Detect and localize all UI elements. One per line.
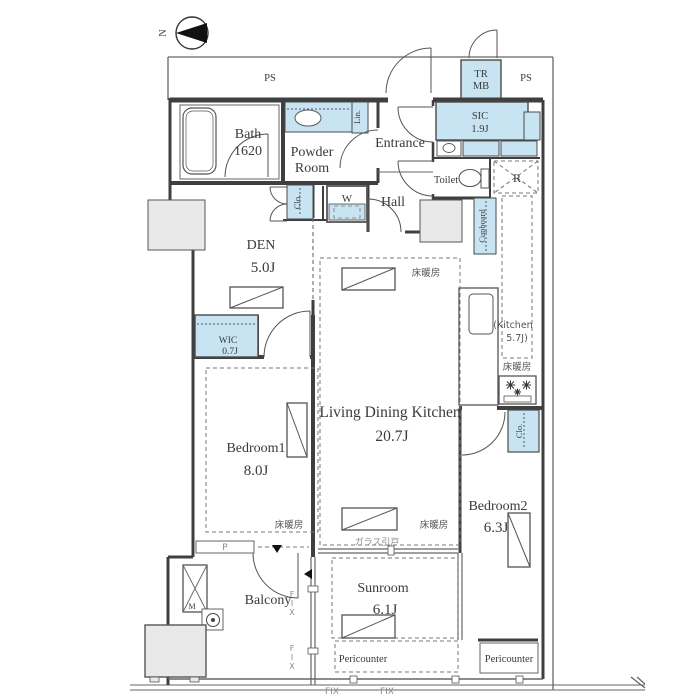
room-bath: Bath 1620: [180, 105, 279, 179]
bath-size: 1620: [234, 144, 262, 159]
meter-box: M: [183, 565, 207, 612]
stove-burner-icon: [506, 381, 515, 390]
ldk-label: Living Dining Kitchen: [319, 404, 460, 421]
floor-heating-kitchen: 床暖房: [503, 361, 532, 373]
den-closet-label: Clo.: [292, 195, 302, 209]
bath-label: Bath: [235, 127, 261, 142]
ldk-size: 20.7J: [375, 428, 408, 445]
den-counter: [230, 287, 283, 308]
north-compass: N: [158, 17, 208, 49]
den-label: DEN: [247, 238, 276, 253]
room-sic: SIC 1.9J: [436, 102, 540, 156]
bedroom2-counter: [508, 513, 530, 567]
glass-door-label: ガラス引戸: [355, 537, 400, 548]
sunroom-counter: [342, 615, 395, 638]
ldk-counter-top: [342, 268, 395, 290]
room-balcony: P M Balcony FIX FIX: [145, 541, 312, 682]
toilet-bowl: [459, 170, 481, 187]
pipe-shaft: P: [196, 541, 309, 553]
pericounter-right-label: Pericounter: [485, 654, 534, 665]
bedroom2-size: 6.3J: [484, 520, 509, 536]
room-sunroom: Sunroom 6.1J Pericounter: [332, 558, 458, 672]
stove: [499, 376, 536, 404]
room-ldk: 床暖房 床暖房 Living Dining Kitchen 20.7J: [319, 258, 460, 545]
bedroom1-counter: [287, 403, 307, 457]
kitchen-size: 5.7J): [506, 333, 528, 344]
column-hall: [420, 200, 462, 242]
fix-bottom-right: FIX: [380, 687, 394, 697]
floor-heating-ldk-top: 床暖房: [412, 267, 441, 279]
cupboard-label: Cupboard: [477, 208, 487, 242]
wic-size: 0.7J: [222, 347, 238, 357]
washer-space: W: [327, 186, 367, 222]
pipe-label: P: [222, 543, 228, 553]
compass-north-label: N: [158, 29, 169, 36]
room-toilet: Toilet: [434, 169, 489, 188]
pericounter-left-label: Pericounter: [339, 654, 388, 665]
kitchen-area: (Kitchen 5.7J) 床暖房: [459, 196, 536, 405]
column-left: [148, 200, 205, 250]
meter-label: M: [188, 602, 195, 611]
stove-burner-icon: [514, 389, 521, 396]
toilet-label: Toilet: [434, 175, 458, 186]
fix-window-lower: FIX: [288, 644, 297, 671]
den-closet: Clo.: [270, 185, 313, 221]
trunk-meter-box: TR MB: [461, 30, 501, 104]
mb-label: MB: [473, 81, 489, 92]
floor-plan-page: N PS PS TR MB: [0, 0, 700, 700]
ps-right-label: PS: [520, 73, 532, 84]
glass-sliding-door: ガラス引戸: [318, 537, 458, 555]
pericounter-left: Pericounter: [335, 641, 458, 672]
linen-label: Lin.: [352, 110, 362, 124]
pericounter-right: Pericounter: [480, 643, 538, 673]
den-size: 5.0J: [251, 260, 276, 276]
room-bedroom2: Clo. Bedroom2 6.3J Pericounter: [462, 410, 539, 673]
room-entrance: Entrance: [375, 48, 433, 196]
fix-bottom-left: FIX: [325, 687, 339, 697]
bedroom2-label: Bedroom2: [468, 499, 527, 514]
kitchen-label: (Kitchen: [493, 320, 532, 331]
ps-left-label: PS: [264, 73, 276, 84]
floor-plan-svg: N PS PS TR MB: [0, 0, 700, 700]
bedroom2-closet: Clo.: [508, 410, 539, 452]
sic-size: 1.9J: [471, 124, 488, 135]
bedroom1-size: 8.0J: [244, 463, 269, 479]
balcony-label: Balcony: [245, 593, 292, 608]
fridge-space: R: [494, 161, 538, 193]
fix-window-upper: FIX: [288, 590, 297, 617]
entry-marker-left-icon: [304, 569, 312, 579]
floor-heating-ldk-bottom: 床暖房: [420, 519, 449, 531]
fridge-label: R: [513, 171, 521, 185]
entrance-label: Entrance: [375, 136, 425, 151]
wic-label: WIC: [219, 336, 237, 346]
hall-label: Hall: [381, 195, 405, 210]
sic-label: SIC: [472, 111, 488, 122]
washer-label: W: [342, 193, 353, 205]
floor-heating-bedroom1: 床暖房: [275, 519, 304, 531]
powder-label-2: Room: [295, 161, 329, 176]
sunroom-label: Sunroom: [357, 581, 408, 596]
stove-burner-icon: [522, 381, 531, 390]
tr-label: TR: [474, 69, 487, 80]
sink-basin: [295, 110, 321, 126]
room-hall: Hall: [368, 195, 405, 232]
cupboard: Cupboard: [474, 198, 496, 254]
entry-marker-down-icon: [272, 545, 282, 553]
bedroom1-label: Bedroom1: [226, 441, 285, 456]
room-powder: Lin. Powder Room: [285, 102, 378, 176]
powder-label-1: Powder: [291, 145, 334, 160]
outdoor-unit: [145, 625, 206, 682]
ldk-counter-bottom: [342, 508, 397, 530]
kitchen-sink: [469, 294, 493, 334]
wic: WIC 0.7J: [195, 315, 258, 357]
bedroom2-closet-label: Clo.: [514, 424, 524, 438]
